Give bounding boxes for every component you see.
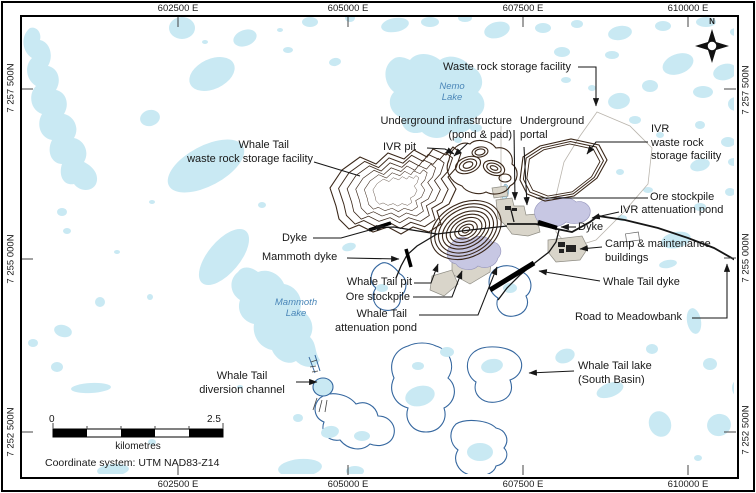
label-underground-portal: Underground portal: [520, 115, 584, 142]
label-road-to-meadowbank: Road to Meadowbank: [575, 311, 682, 325]
label-underground-infrastructure: Underground infrastructure (pond & pad): [356, 115, 512, 142]
label-whale-tail-wrsf: Whale Tail waste rock storage facility: [161, 139, 313, 166]
label-whale-tail-diversion-channel: Whale Tail diversion channel: [186, 370, 298, 397]
label-ivr-wrsf: IVR waste rock storage facility: [651, 123, 721, 164]
coord-left-7252500n: 7 252 500N: [6, 407, 17, 456]
coord-top-610000e: 610000 E: [668, 3, 709, 14]
label-whale-tail-attenuation-pond: Whale Tail attenuation pond: [326, 308, 417, 335]
north-arrow-label: N: [705, 17, 719, 26]
coord-top-607500e: 607500 E: [503, 3, 544, 14]
coord-bottom-607500e: 607500 E: [503, 479, 544, 490]
label-whale-tail-pit: Whale Tail pit: [340, 276, 412, 290]
label-ore-stockpile-east: Ore stockpile: [650, 191, 714, 205]
label-mammoth-dyke: Mammoth dyke: [262, 251, 337, 265]
site-map-figure: 602500 E 605000 E 607500 E 610000 E 6025…: [0, 0, 756, 493]
label-whale-tail-dyke: Whale Tail dyke: [603, 276, 680, 290]
coord-bottom-610000e: 610000 E: [668, 479, 709, 490]
coord-top-605000e: 605000 E: [328, 3, 369, 14]
scale-start-value: 0: [49, 414, 55, 425]
scale-end-value: 2.5: [207, 414, 221, 425]
label-dyke-east: Dyke: [578, 221, 603, 235]
coord-bottom-602500e: 602500 E: [158, 479, 199, 490]
label-nemo-lake: Nemo Lake: [430, 81, 474, 103]
coordinate-system-note: Coordinate system: UTM NAD83-Z14: [45, 457, 219, 469]
coord-right-7257500n: 7 257 500N: [741, 65, 752, 114]
coord-left-7257500n: 7 257 500N: [6, 63, 17, 112]
coord-top-602500e: 602500 E: [158, 3, 199, 14]
label-ivr-pit: IVR pit: [383, 141, 416, 155]
scale-unit-label: kilometres: [88, 441, 188, 452]
label-ivr-attenuation-pond: IVR attenuation pond: [620, 204, 723, 218]
label-camp-maintenance-buildings: Camp & maintenance buildings: [605, 238, 711, 265]
label-dyke-west: Dyke: [282, 232, 307, 246]
coord-right-7252500n: 7 252 500N: [741, 405, 752, 454]
coord-left-7255000n: 7 255 000N: [6, 234, 17, 283]
label-waste-rock-storage-facility: Waste rock storage facility: [443, 61, 571, 75]
label-mammoth-lake: Mammoth Lake: [270, 297, 322, 319]
label-whale-tail-lake: Whale Tail lake (South Basin): [578, 360, 652, 387]
label-ore-stockpile-south: Ore stockpile: [340, 291, 410, 305]
coord-right-7255000n: 7 255 000N: [741, 233, 752, 282]
coord-bottom-605000e: 605000 E: [328, 479, 369, 490]
